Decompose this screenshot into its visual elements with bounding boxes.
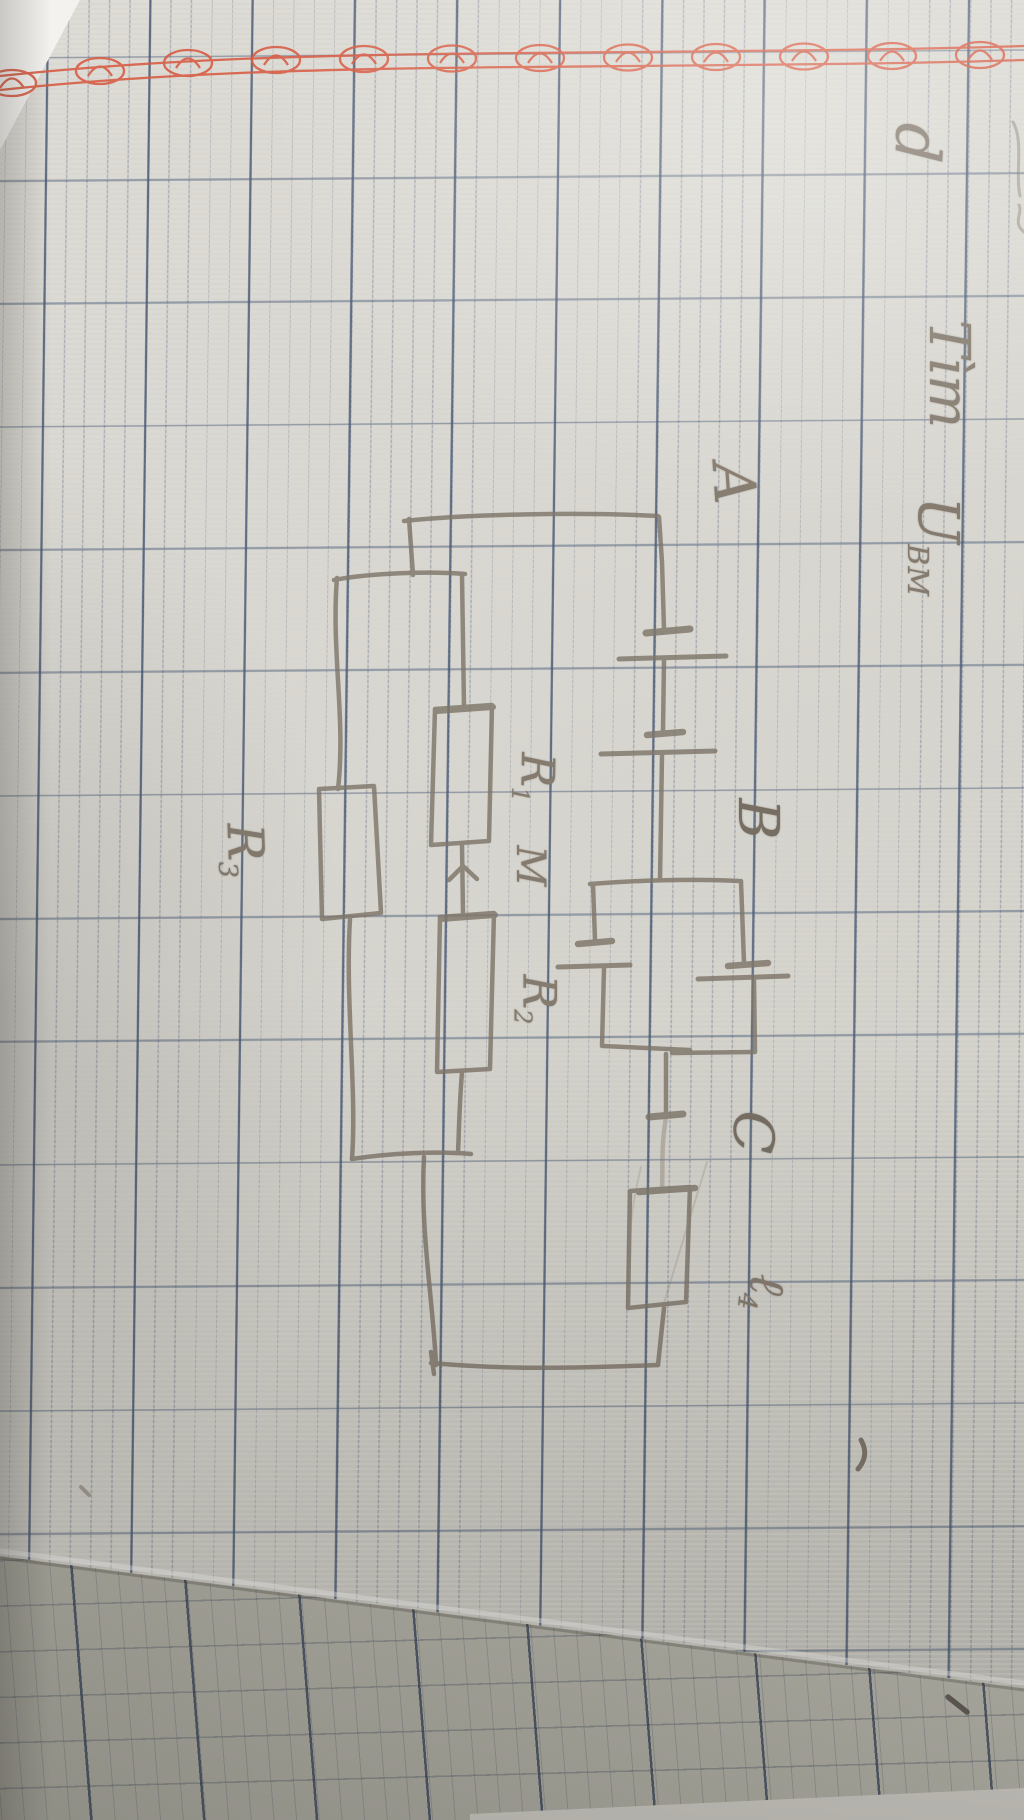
resistor-r3-label: R3	[213, 822, 272, 879]
wire-r3-up	[336, 578, 341, 789]
wire-r3-down	[349, 919, 353, 1159]
sheet-edge-highlight	[0, 1551, 1024, 1683]
wire-c-bus-1	[603, 1046, 690, 1050]
wire-top-left-drop	[409, 519, 413, 575]
stray-bottom-tick	[948, 1697, 967, 1712]
sheet-edge-shadow	[0, 1558, 1024, 1690]
quantity-symbol: U	[905, 497, 970, 544]
sketch-layer	[0, 0, 1024, 1820]
wire-top	[404, 514, 658, 521]
wire-left-down	[423, 1157, 436, 1365]
capacitor-a2-plate-a	[647, 732, 683, 735]
circuit-sketch	[319, 514, 788, 1374]
stray-edge-curve	[1013, 122, 1024, 232]
capacitor-a1-plate-a	[646, 629, 690, 633]
capacitor-a1-plate-b	[619, 656, 726, 659]
wire-cap-right-top	[741, 881, 744, 963]
node-c-label: C	[723, 1109, 781, 1155]
resistor-r2-top-edge	[441, 915, 495, 919]
quantity-subscript: BM	[901, 544, 935, 597]
resistor-r1-top-edge	[437, 707, 493, 711]
resistor-r2-label: R2	[510, 975, 563, 1026]
wire-bottom	[431, 1363, 658, 1368]
wire-r4-bottom	[658, 1308, 664, 1365]
red-margin-chain	[0, 42, 1024, 96]
wire-a-mid	[663, 660, 664, 731]
wire-join-left	[352, 1153, 471, 1159]
resistor-r1-label: R1	[507, 752, 561, 804]
quantity-label: UBM	[903, 497, 965, 597]
stray-comma	[858, 1440, 865, 1469]
resistor-r4-top-edge	[639, 1188, 695, 1192]
stray-left-tick	[81, 1487, 89, 1495]
junction-c-plate	[649, 1114, 683, 1117]
wire-r1-up	[462, 575, 464, 707]
capacitor-a2-plate-b	[601, 751, 715, 754]
capacitor-left-plate-b	[558, 965, 630, 967]
node-m-label: M	[510, 846, 550, 887]
capacitor-right-plate-b	[698, 976, 788, 979]
resistor-r3-box	[319, 786, 381, 919]
notebook-page-photo: d Tìm UBM A B C M R1 R2 R3 ℓ4	[0, 0, 1024, 1820]
wire-splitter	[334, 573, 465, 580]
capacitor-right-plate-a	[728, 963, 768, 966]
wire-c-to-r4	[662, 1118, 666, 1190]
part-label: d	[885, 122, 949, 165]
resistor-r1-box	[431, 705, 492, 845]
wire-r1-m	[462, 845, 463, 913]
wire-cap-right-bottom	[754, 980, 755, 1052]
node-a-label: A	[704, 460, 765, 506]
task-word: Tìm	[920, 320, 976, 428]
wire-a-to-b	[660, 755, 662, 880]
wire-a-down	[659, 517, 664, 629]
wire-cap-left-bottom	[602, 968, 604, 1046]
capacitor-left-plate-a	[578, 941, 612, 944]
stray-marks	[81, 122, 1024, 1712]
node-b-label: B	[729, 798, 785, 839]
resistor-r2-box	[437, 913, 494, 1072]
wire-c-bus-2	[672, 1052, 754, 1053]
resistor-r4-label: ℓ4	[733, 1271, 794, 1315]
wire-cap-left-top	[593, 884, 595, 940]
wire-r2-down	[458, 1072, 462, 1152]
wire-b-bus	[590, 880, 739, 884]
